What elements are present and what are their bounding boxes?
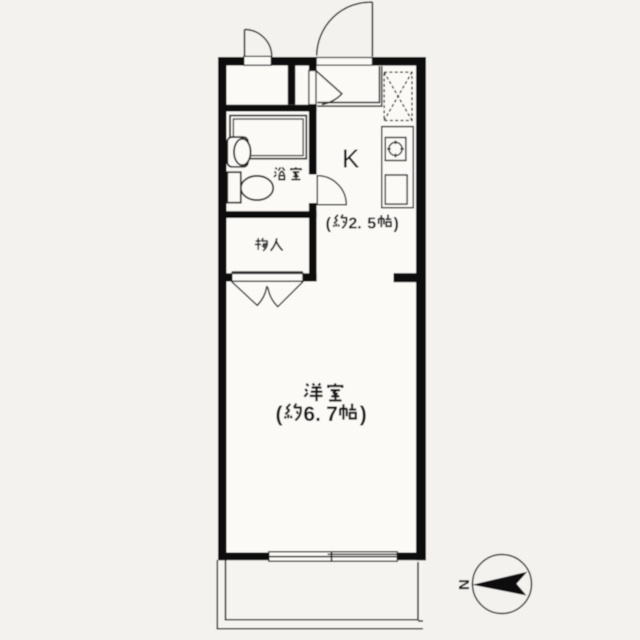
svg-text:(: ( bbox=[326, 216, 332, 233]
svg-text:N: N bbox=[455, 579, 472, 590]
svg-text:): ) bbox=[394, 216, 399, 233]
svg-text:): ) bbox=[360, 403, 367, 426]
svg-text:(: ( bbox=[276, 403, 283, 426]
svg-text:6.: 6. bbox=[303, 403, 321, 426]
svg-text:2.: 2. bbox=[348, 216, 361, 233]
svg-text:7: 7 bbox=[326, 403, 338, 426]
svg-text:5: 5 bbox=[367, 216, 376, 233]
svg-text:K: K bbox=[342, 144, 360, 174]
